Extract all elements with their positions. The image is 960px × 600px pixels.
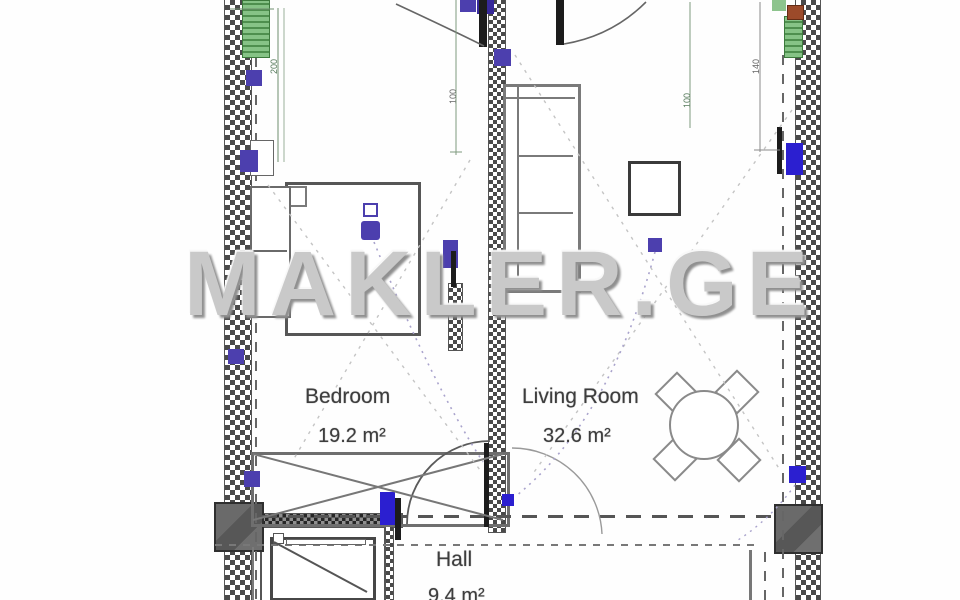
door-leaf [479,0,487,47]
livingroom-label: Living Room [522,385,639,409]
bedroom-area: 19.2 m² [318,425,386,448]
switch-icon [363,203,378,217]
bedroom-label: Bedroom [305,385,390,409]
hall-label: Hall [436,548,472,572]
floorplan-canvas: 200 100 100 140 Bedroom 19.2 m² Living R… [0,0,960,600]
window-icon [786,143,803,175]
sofa-armrest-line [503,97,575,99]
door-arc [564,2,646,44]
door-jamb [395,498,401,540]
shower-tray [270,537,376,600]
window-icon [789,466,806,483]
hall-area: 9.4 m² [428,585,485,600]
dining-table [669,390,739,460]
window-jamb [777,127,782,174]
drain-icon [273,533,284,544]
window-icon [502,494,514,506]
bathroom-wall-line [252,547,254,600]
radiator-icon [784,16,803,58]
side-table [628,161,681,216]
socket-icon [240,150,258,172]
dimension-label: 140 [752,58,761,75]
socket-icon [246,70,262,86]
sofa-cushion-line [519,212,573,214]
radiator-icon [772,0,786,11]
door-arc [512,448,602,534]
window-icon [380,492,395,525]
socket-icon [494,49,511,66]
radiator-icon [242,0,270,58]
door-leaf [484,443,489,527]
watermark: MAKLER.GE [184,238,817,330]
socket-icon [460,0,476,12]
door-leaf [556,0,564,45]
hall-partition-axis [764,552,766,600]
socket-icon [228,349,244,364]
valve-icon [787,5,804,20]
hall-partition-line [749,550,752,600]
dimension-label: 100 [683,92,692,109]
hall-dashed-line [262,515,777,518]
sofa-cushion-line [519,155,573,157]
socket-icon [244,471,260,487]
dimension-label: 200 [270,58,279,75]
livingroom-area: 32.6 m² [543,425,611,448]
dimension-label: 100 [449,88,458,105]
shower-rail [286,539,366,545]
